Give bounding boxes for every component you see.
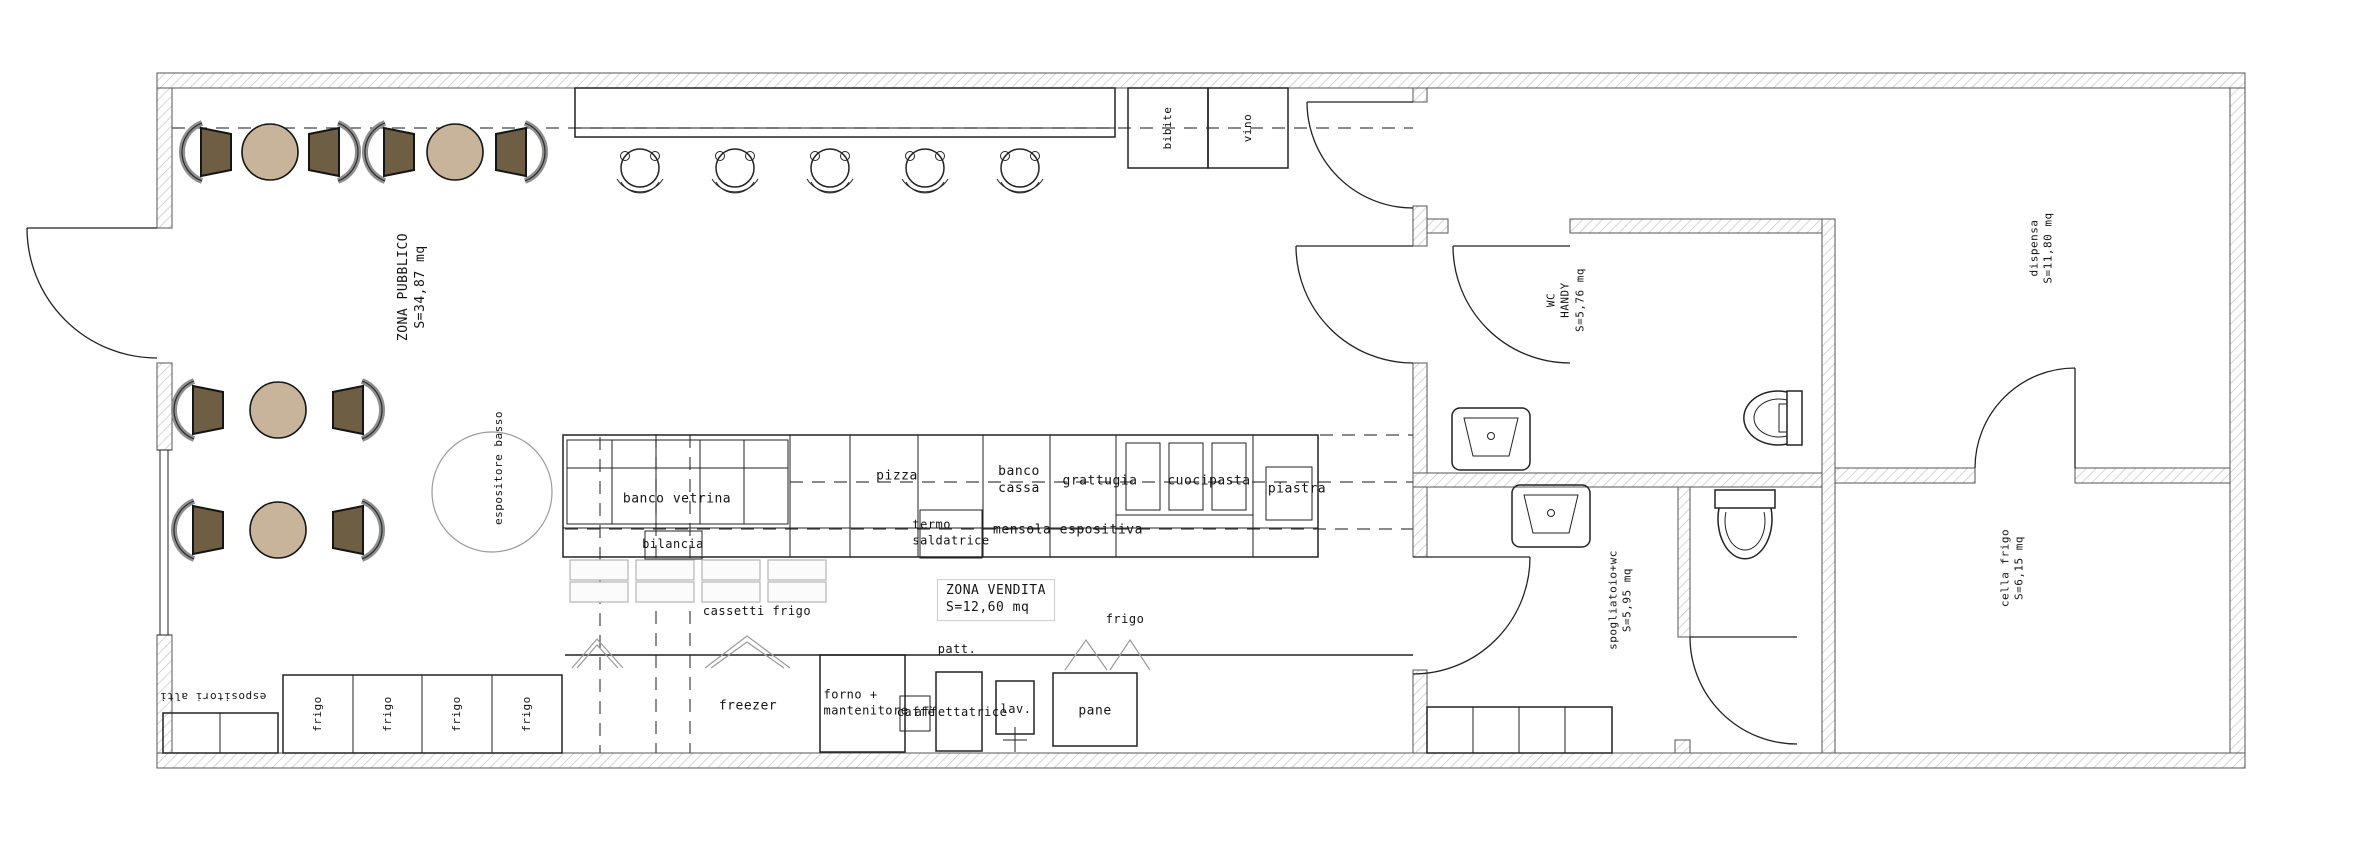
entrance-door xyxy=(27,228,157,358)
display-units xyxy=(163,675,562,753)
label-frigo-unit: frigo xyxy=(381,696,395,732)
table-set xyxy=(174,381,382,439)
label-espositore-basso: espositore basso xyxy=(492,411,506,525)
label-patt: patt. xyxy=(938,642,977,658)
label-frigo-unit: frigo xyxy=(311,696,325,732)
lockers xyxy=(1427,707,1612,753)
label-affettatrice: affettatrice xyxy=(915,705,1008,721)
table-set xyxy=(174,501,382,559)
round-table xyxy=(242,124,298,180)
wc-compartment-door xyxy=(1690,637,1797,744)
bar-counter xyxy=(575,88,1115,193)
label-zona-vendita: ZONA VENDITA S=12,60 mq xyxy=(937,579,1055,621)
label-cassetti-frigo: cassetti frigo xyxy=(703,604,811,620)
round-table xyxy=(250,502,306,558)
cella-frigo-door xyxy=(1975,368,2075,468)
label-frigo-retro: frigo xyxy=(1106,612,1145,628)
label-grattugia: grattugia xyxy=(1063,474,1138,491)
label-pane: pane xyxy=(1078,704,1111,721)
round-table xyxy=(250,382,306,438)
fridge-drawers xyxy=(570,560,826,602)
label-banco-vetrina: banco vetrina xyxy=(623,492,731,509)
label-bilancia: bilancia xyxy=(642,537,704,553)
label-cuocipasta: cuocipasta xyxy=(1167,474,1250,491)
label-zona-pubblico: ZONA PUBBLICO S=34,87 mq xyxy=(396,233,430,341)
label-espositori-alti: espositori alti xyxy=(160,689,267,703)
plan-canvas xyxy=(0,0,2364,848)
label-vino: vino xyxy=(1241,114,1255,143)
label-termo-saldatrice: termo saldatrice xyxy=(912,517,989,548)
window xyxy=(157,450,172,635)
corridor-door xyxy=(1307,102,1413,208)
label-bibite: bibite xyxy=(1161,107,1175,150)
open-door-marks xyxy=(572,636,1150,670)
label-frigo-unit: frigo xyxy=(450,696,464,732)
label-wc-handy: WC HANDY S=5,76 mq xyxy=(1545,268,1588,332)
label-piastra: piastra xyxy=(1268,482,1326,499)
label-pizza: pizza xyxy=(876,469,918,486)
label-banco-cassa: banco cassa xyxy=(998,464,1040,498)
service-door xyxy=(1296,246,1413,363)
round-table xyxy=(427,124,483,180)
floor-plan: ZONA PUBBLICO S=34,87 mq espositore bass… xyxy=(0,0,2364,848)
table-set xyxy=(182,123,358,181)
label-mensola-espositiva: mensola espositiva xyxy=(993,523,1143,540)
dining-tables xyxy=(174,123,545,559)
spogliatoio-door xyxy=(1413,557,1530,674)
table-set xyxy=(365,123,545,181)
section-lines xyxy=(172,128,1413,753)
label-spogliatoio: spogliatoio+wc S=5,95 mq xyxy=(1607,550,1636,650)
label-freezer: freezer xyxy=(719,699,777,716)
label-dispensa: dispensa S=11,80 mq xyxy=(2028,212,2057,283)
label-frigo-unit: frigo xyxy=(520,696,534,732)
walls xyxy=(157,73,2245,768)
label-cella-frigo: cella frigo S=6,15 mq xyxy=(1999,529,2028,607)
label-lav: lav. xyxy=(1001,702,1032,718)
